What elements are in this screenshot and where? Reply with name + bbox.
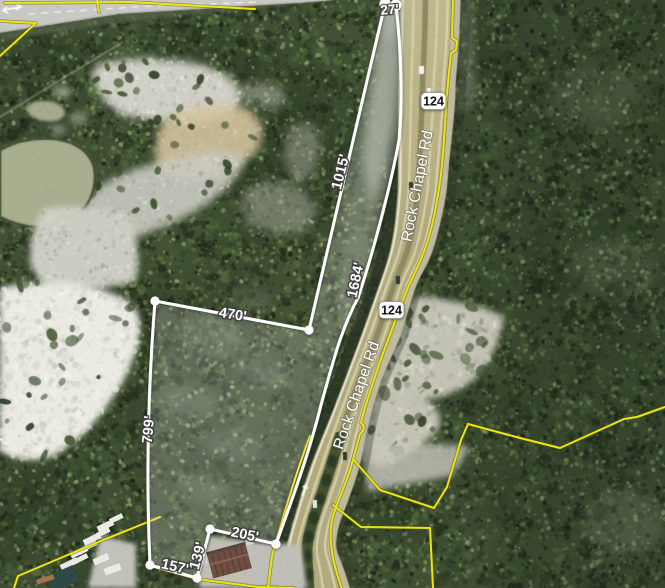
svg-text:Rock Chapel Rd: Rock Chapel Rd (330, 339, 383, 451)
svg-text:27': 27' (380, 1, 399, 18)
svg-text:124: 124 (381, 304, 402, 318)
svg-text:124: 124 (423, 95, 444, 109)
svg-text:799': 799' (140, 415, 158, 444)
